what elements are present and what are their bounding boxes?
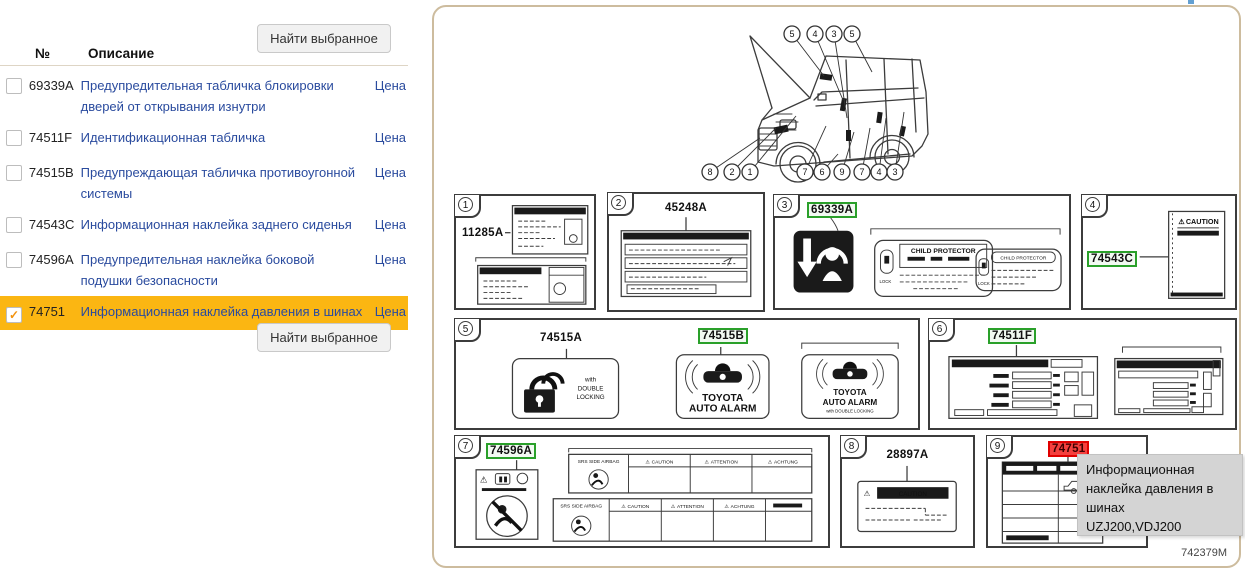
part-label-74543C[interactable]: 74543C <box>1087 251 1137 267</box>
svg-text:3: 3 <box>892 167 897 177</box>
part-tooltip: Информационная наклейка давления в шинах… <box>1077 454 1243 536</box>
box-number-badge: 9 <box>987 436 1013 459</box>
part-description-link[interactable]: Идентификационная табличка <box>81 127 363 148</box>
parts-rows: 69339A Предупредительная табличка блокир… <box>0 70 408 330</box>
checkbox-cell <box>0 214 29 239</box>
diagram-box-3: 3 CHILD PROTECTOR <box>773 194 1071 310</box>
row-checkbox[interactable] <box>6 130 22 146</box>
svg-text:with DOUBLE LOCKING: with DOUBLE LOCKING <box>826 409 874 414</box>
svg-text:⚠ATTENTION: ⚠ATTENTION <box>705 460 739 466</box>
diagram-code: 742379M <box>1181 547 1227 559</box>
part-label-74596A[interactable]: 74596A <box>486 443 536 459</box>
column-header-description: Описание <box>88 46 154 61</box>
part-number: 74751 <box>29 301 81 322</box>
checkbox-cell: ✓ <box>0 301 29 325</box>
price-link[interactable]: Цена <box>362 162 408 183</box>
table-row[interactable]: 74543C Информационная наклейка заднего с… <box>0 209 408 244</box>
part-number: 74543C <box>29 214 81 235</box>
box-number-badge: 4 <box>1082 195 1108 218</box>
diagram-box-5: 5 with DOUBLE LOCKING <box>454 318 920 430</box>
part-description-link[interactable]: Предупредительная наклейка боковой подуш… <box>81 249 363 291</box>
part-description-link[interactable]: Предупредительная табличка блокировки дв… <box>81 75 363 117</box>
page: Найти выбранное № Описание 69339A Предуп… <box>0 0 1245 578</box>
svg-text:⚠ACHTUNG: ⚠ACHTUNG <box>768 460 798 466</box>
table-row[interactable]: 74511F Идентификационная табличка Цена <box>0 122 408 157</box>
row-checkbox[interactable] <box>6 217 22 233</box>
box-number-badge: 3 <box>774 195 800 218</box>
svg-text:6: 6 <box>819 167 824 177</box>
table-row[interactable]: 74596A Предупредительная наклейка боково… <box>0 244 408 296</box>
column-header-number: № <box>35 46 50 61</box>
parts-table: Найти выбранное № Описание 69339A Предуп… <box>0 0 420 578</box>
diagram-box-2: 2 45248A <box>607 192 765 312</box>
svg-text:3: 3 <box>831 29 836 39</box>
checkbox-cell <box>0 162 29 187</box>
checkbox-cell <box>0 127 29 152</box>
checkbox-cell <box>0 249 29 274</box>
diagram-panel: 5435821769743 1 11285A 2 <box>432 5 1241 568</box>
svg-text:5: 5 <box>789 29 794 39</box>
table-row[interactable]: 74515B Предупреждающая табличка противоу… <box>0 157 408 209</box>
find-selected-button-bottom[interactable]: Найти выбранное <box>257 323 391 352</box>
box-number-badge: 7 <box>455 436 481 459</box>
clipped-element-fragment <box>1188 0 1194 4</box>
part-number: 74511F <box>29 127 81 148</box>
diagram-box-1: 1 11285A <box>454 194 596 310</box>
find-selected-button-top[interactable]: Найти выбранное <box>257 24 391 53</box>
svg-text:TOYOTA: TOYOTA <box>833 388 866 397</box>
svg-text:⚠CAUTION: ⚠CAUTION <box>621 504 649 510</box>
svg-text:with: with <box>584 377 597 384</box>
header-divider <box>0 65 408 66</box>
part-label-69339A[interactable]: 69339A <box>807 202 857 218</box>
part-label-11285A[interactable]: 11285A <box>460 227 505 239</box>
diagram-box-6: 6 <box>928 318 1237 430</box>
svg-text:⚠ATTENTION: ⚠ATTENTION <box>671 504 705 510</box>
svg-text:7: 7 <box>802 167 807 177</box>
diagram-box-8: 8 ⚠ CAUTION 28897A <box>840 435 975 548</box>
svg-text:4: 4 <box>812 29 817 39</box>
row-checkbox[interactable]: ✓ <box>6 307 22 323</box>
part-label-74515A[interactable]: 74515A <box>538 332 584 344</box>
svg-text:LOCK: LOCK <box>978 281 990 286</box>
svg-text:LOCK: LOCK <box>880 279 892 284</box>
svg-text:⚠: ⚠ <box>480 474 488 484</box>
price-link[interactable]: Цена <box>362 127 408 148</box>
svg-text:AUTO ALARM: AUTO ALARM <box>823 398 878 407</box>
box-number-badge: 1 <box>455 195 481 218</box>
box-number-badge: 5 <box>455 319 481 342</box>
diagram-box-7: 7 ⚠ SRS SIDE AIRBA <box>454 435 830 548</box>
svg-text:8: 8 <box>707 167 712 177</box>
svg-text:SRS SIDE AIRBAG: SRS SIDE AIRBAG <box>560 503 602 509</box>
part-number: 74515B <box>29 162 81 183</box>
part-description-link[interactable]: Предупреждающая табличка противоугонной … <box>81 162 363 204</box>
part-label-74511F[interactable]: 74511F <box>988 328 1036 344</box>
svg-text:⚠CAUTION: ⚠CAUTION <box>645 460 673 466</box>
table-row[interactable]: 69339A Предупредительная табличка блокир… <box>0 70 408 122</box>
price-link[interactable]: Цена <box>362 249 408 270</box>
svg-text:4: 4 <box>876 167 881 177</box>
row-checkbox[interactable] <box>6 165 22 181</box>
part-label-74515B[interactable]: 74515B <box>698 328 748 344</box>
svg-text:⚠CAUTION: ⚠CAUTION <box>1178 217 1218 226</box>
svg-text:TOYOTA: TOYOTA <box>702 393 744 404</box>
price-link[interactable]: Цена <box>362 75 408 96</box>
label-art-6 <box>930 320 1235 428</box>
svg-text:CAUTION: CAUTION <box>899 491 927 498</box>
part-number: 69339A <box>29 75 81 96</box>
row-checkbox[interactable] <box>6 78 22 94</box>
svg-text:9: 9 <box>839 167 844 177</box>
tooltip-description: Информационная наклейка давления в шинах <box>1086 462 1213 515</box>
svg-text:5: 5 <box>849 29 854 39</box>
svg-text:DOUBLE: DOUBLE <box>578 385 604 392</box>
tooltip-models: UZJ200,VDJ200 <box>1086 519 1181 534</box>
part-label-28897A[interactable]: 28897A <box>842 449 973 461</box>
car-diagram: 5435821769743 <box>674 13 954 195</box>
row-checkbox[interactable] <box>6 252 22 268</box>
diagram-box-4: 4 ⚠CAUTION 74543C <box>1081 194 1237 310</box>
svg-text:LOCKING: LOCKING <box>577 394 605 401</box>
part-description-link[interactable]: Информационная наклейка заднего сиденья <box>81 214 363 235</box>
svg-text:2: 2 <box>729 167 734 177</box>
svg-text:⚠ACHTUNG: ⚠ACHTUNG <box>724 504 754 510</box>
svg-text:AUTO ALARM: AUTO ALARM <box>689 404 756 415</box>
svg-text:SRS SIDE AIRBAG: SRS SIDE AIRBAG <box>578 459 620 465</box>
price-link[interactable]: Цена <box>362 214 408 235</box>
part-description-link[interactable]: Информационная наклейка давления в шинах <box>81 301 363 322</box>
svg-text:CHILD PROTECTOR: CHILD PROTECTOR <box>1000 256 1046 262</box>
svg-text:7: 7 <box>859 167 864 177</box>
svg-text:1: 1 <box>747 167 752 177</box>
part-number: 74596A <box>29 249 81 270</box>
box-number-badge: 6 <box>929 319 955 342</box>
checkbox-cell <box>0 75 29 100</box>
svg-text:⚠: ⚠ <box>864 489 871 498</box>
part-label-45248A[interactable]: 45248A <box>609 202 763 214</box>
svg-text:CHILD PROTECTOR: CHILD PROTECTOR <box>911 248 976 255</box>
label-art-5: with DOUBLE LOCKING TOYOTA AUTO ALARM <box>456 320 918 428</box>
price-link[interactable]: Цена <box>362 301 408 322</box>
